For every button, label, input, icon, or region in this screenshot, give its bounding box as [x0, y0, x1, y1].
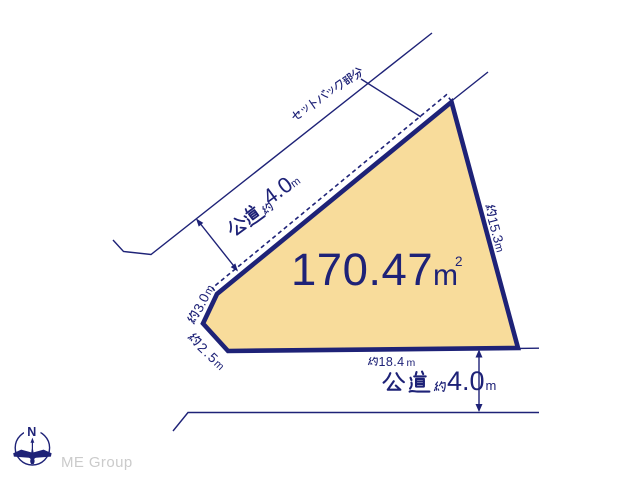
svg-text:ME Group: ME Group: [61, 454, 133, 471]
svg-text:4.0: 4.0: [447, 366, 485, 396]
svg-text:m: m: [486, 378, 497, 393]
svg-text:m: m: [407, 357, 416, 369]
svg-text:18.4: 18.4: [379, 355, 405, 369]
svg-text:170.47: 170.47: [291, 244, 433, 295]
svg-text:2: 2: [455, 254, 463, 269]
svg-text:N: N: [27, 425, 36, 439]
